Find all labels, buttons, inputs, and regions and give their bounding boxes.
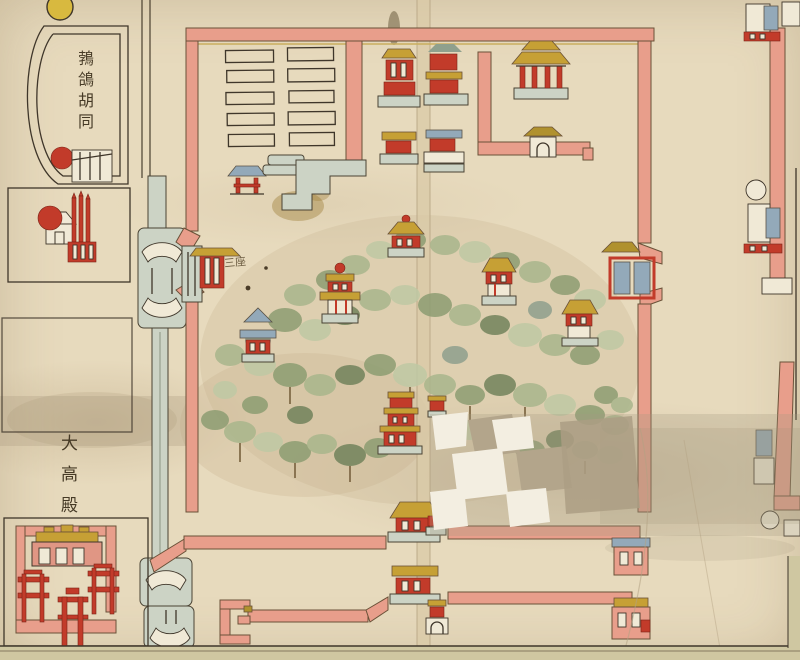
yellow-circle-marker [47, 0, 73, 20]
map-canvas: 鵓鴿胡同 大高殿 三座 [0, 0, 800, 660]
shrine-with-red-ball [8, 188, 130, 282]
northeast-courtyard-gate-hall [512, 41, 570, 99]
map-drawing [0, 0, 800, 660]
label-boge-hutong: 鵓鴿胡同 [76, 50, 92, 134]
red-ball-marker [51, 147, 73, 169]
dagaodian-temple-complex [4, 518, 148, 649]
label-gate-annotation: 三座 [223, 253, 247, 271]
small-pavilion [228, 166, 266, 194]
courtyard-small-gate [524, 127, 562, 157]
spiral-gate [220, 600, 252, 644]
pavilion-east1 [482, 258, 516, 305]
label-dagaodian: 大高殿 [58, 434, 75, 527]
red-pailou-archways [18, 564, 119, 649]
barracks-rows-enclosure [225, 47, 335, 146]
